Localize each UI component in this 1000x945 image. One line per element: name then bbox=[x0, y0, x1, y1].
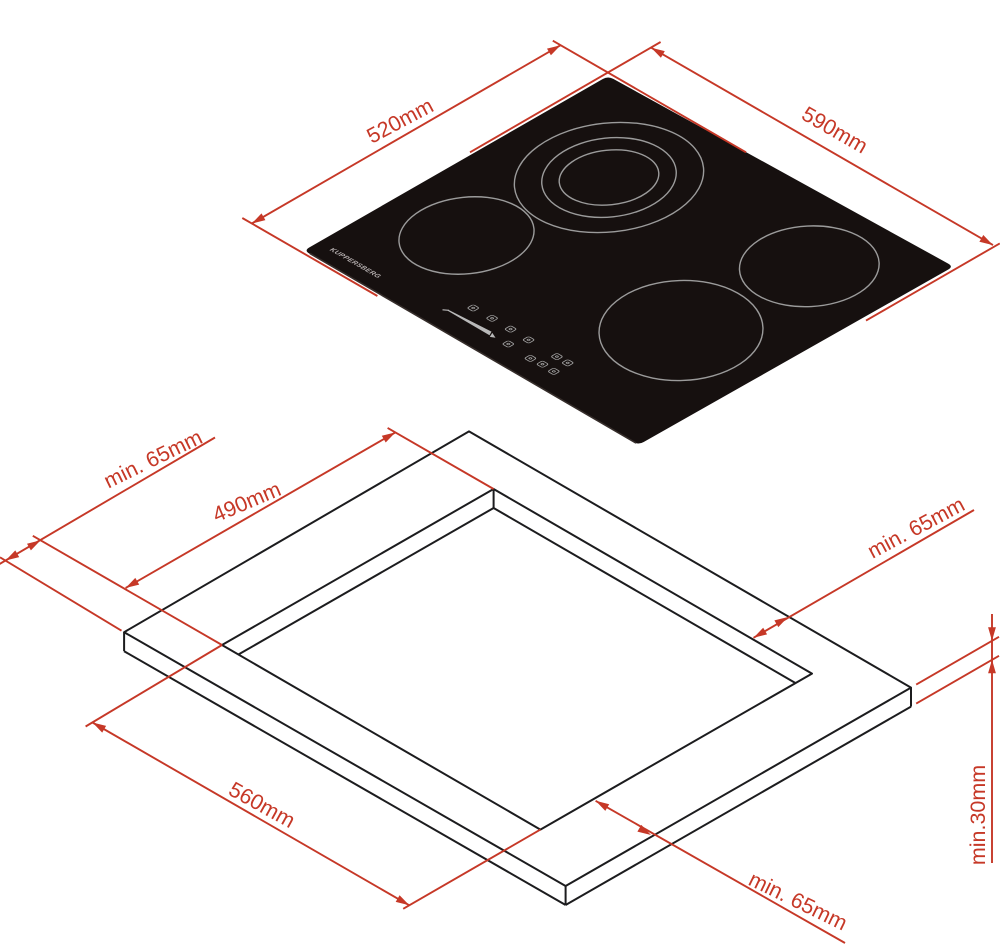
svg-text:520mm: 520mm bbox=[363, 94, 438, 149]
svg-text:min. 65mm: min. 65mm bbox=[745, 867, 851, 935]
svg-text:min. 65mm: min. 65mm bbox=[100, 425, 206, 493]
svg-text:490mm: 490mm bbox=[209, 477, 284, 527]
svg-text:590mm: 590mm bbox=[798, 102, 872, 159]
svg-text:min.30mm: min.30mm bbox=[966, 765, 990, 865]
svg-text:min. 65mm: min. 65mm bbox=[864, 492, 969, 563]
